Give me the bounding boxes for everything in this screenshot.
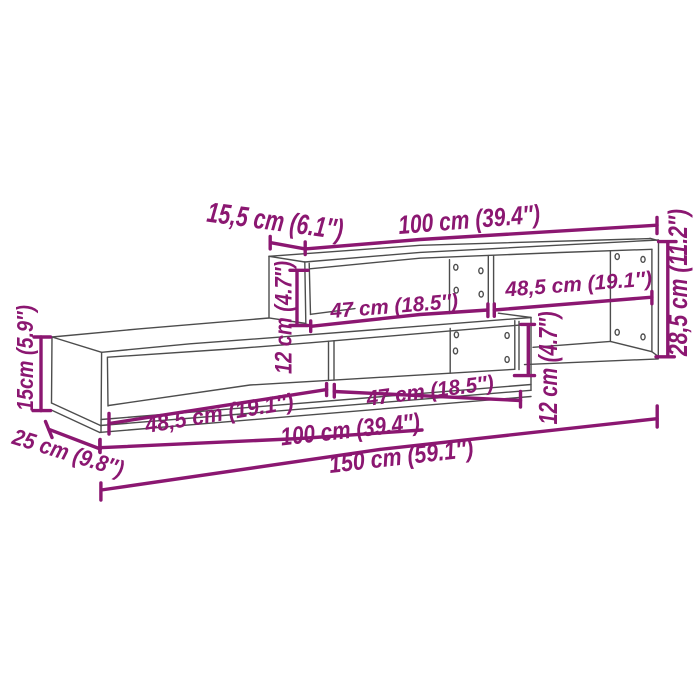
svg-text:12 cm (4.7″): 12 cm (4.7″) [271,261,298,374]
svg-text:28,5 cm (11.2″): 28,5 cm (11.2″) [663,209,693,357]
svg-text:12 cm (4.7″): 12 cm (4.7″) [533,312,563,425]
svg-text:15cm (5.9″): 15cm (5.9″) [12,305,38,411]
